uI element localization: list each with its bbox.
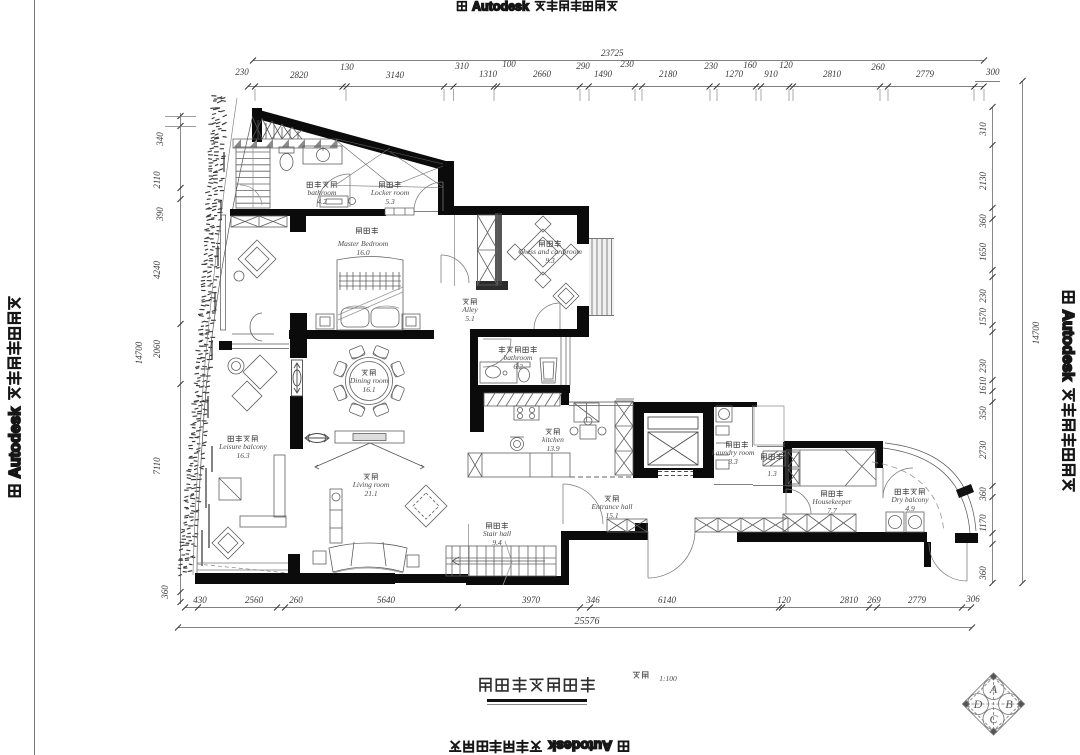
svg-text:346: 346 bbox=[585, 595, 600, 605]
svg-text:230: 230 bbox=[235, 67, 249, 77]
svg-text:16.3: 16.3 bbox=[236, 451, 249, 460]
svg-text:260: 260 bbox=[289, 595, 303, 605]
svg-text:bathroom: bathroom bbox=[308, 188, 337, 197]
svg-text:16.1: 16.1 bbox=[362, 385, 375, 394]
svg-text:2560: 2560 bbox=[245, 595, 264, 605]
svg-text:1270: 1270 bbox=[725, 69, 744, 79]
svg-text:5640: 5640 bbox=[377, 595, 396, 605]
svg-text:390: 390 bbox=[155, 207, 165, 222]
svg-text:2110: 2110 bbox=[152, 171, 162, 189]
svg-text:2810: 2810 bbox=[823, 69, 842, 79]
svg-text:25576: 25576 bbox=[575, 616, 600, 627]
svg-text:6140: 6140 bbox=[658, 595, 677, 605]
svg-text:230: 230 bbox=[620, 59, 634, 69]
svg-text:Alley: Alley bbox=[461, 305, 478, 314]
svg-text:2130: 2130 bbox=[978, 172, 988, 191]
svg-text:230: 230 bbox=[704, 61, 718, 71]
svg-text:4240: 4240 bbox=[152, 261, 162, 280]
svg-text:130: 130 bbox=[340, 62, 354, 72]
svg-text:3970: 3970 bbox=[521, 595, 541, 605]
svg-text:7110: 7110 bbox=[152, 457, 162, 475]
svg-text:430: 430 bbox=[193, 595, 207, 605]
svg-text:360: 360 bbox=[978, 487, 988, 502]
svg-text:6.2: 6.2 bbox=[513, 362, 523, 371]
svg-text:1.3: 1.3 bbox=[767, 469, 777, 478]
svg-text:120: 120 bbox=[779, 60, 793, 70]
svg-text:Dry balcony: Dry balcony bbox=[890, 495, 929, 504]
svg-text:100: 100 bbox=[502, 59, 516, 69]
svg-text:B: B bbox=[1005, 697, 1013, 711]
svg-text:C: C bbox=[989, 712, 998, 726]
svg-text:Stair hall: Stair hall bbox=[483, 529, 511, 538]
svg-text:5.1: 5.1 bbox=[465, 314, 474, 323]
svg-text:Chess and card room: Chess and card room bbox=[518, 247, 582, 256]
svg-text:4.9: 4.9 bbox=[905, 504, 915, 513]
svg-text:310: 310 bbox=[978, 122, 988, 137]
svg-text:1490: 1490 bbox=[594, 69, 613, 79]
svg-text:340: 340 bbox=[155, 132, 165, 147]
svg-text:16.0: 16.0 bbox=[356, 248, 369, 257]
svg-text:Leisure balcony: Leisure balcony bbox=[218, 442, 268, 451]
svg-text:2180: 2180 bbox=[659, 69, 678, 79]
svg-text:160: 160 bbox=[743, 60, 757, 70]
svg-text:230: 230 bbox=[978, 359, 988, 373]
svg-text:300: 300 bbox=[985, 67, 1000, 77]
svg-text:A: A bbox=[989, 682, 998, 696]
svg-text:1650: 1650 bbox=[978, 243, 988, 262]
svg-text:9.4: 9.4 bbox=[492, 538, 502, 547]
svg-text:2060: 2060 bbox=[152, 340, 162, 359]
svg-text:2779: 2779 bbox=[916, 69, 935, 79]
svg-text:1:100: 1:100 bbox=[659, 674, 677, 683]
svg-text:290: 290 bbox=[576, 61, 590, 71]
svg-text:7.7: 7.7 bbox=[827, 506, 837, 515]
svg-text:120: 120 bbox=[777, 595, 791, 605]
svg-text:13.9: 13.9 bbox=[546, 444, 559, 453]
svg-text:Living room: Living room bbox=[352, 480, 390, 489]
svg-text:21.1: 21.1 bbox=[364, 489, 377, 498]
svg-text:4.2: 4.2 bbox=[317, 197, 327, 206]
svg-text:kitchen: kitchen bbox=[542, 435, 564, 444]
svg-text:15.1: 15.1 bbox=[605, 511, 618, 520]
svg-text:Dining room: Dining room bbox=[349, 376, 389, 385]
svg-text:14700: 14700 bbox=[1031, 321, 1041, 344]
svg-text:910: 910 bbox=[764, 69, 778, 79]
svg-text:Housekeeper: Housekeeper bbox=[811, 497, 851, 506]
svg-text:2730: 2730 bbox=[978, 441, 988, 460]
svg-text:2820: 2820 bbox=[290, 70, 309, 80]
svg-text:2810: 2810 bbox=[840, 595, 859, 605]
svg-text:2660: 2660 bbox=[533, 69, 552, 79]
svg-text:D: D bbox=[973, 697, 983, 711]
svg-text:1310: 1310 bbox=[479, 69, 498, 79]
svg-text:9.3: 9.3 bbox=[545, 256, 555, 265]
svg-text:Laundry room: Laundry room bbox=[711, 448, 755, 457]
svg-text:310: 310 bbox=[454, 61, 469, 71]
svg-text:3140: 3140 bbox=[385, 70, 405, 80]
svg-text:Entrance hall: Entrance hall bbox=[590, 502, 632, 511]
svg-text:350: 350 bbox=[978, 406, 988, 421]
svg-text:306: 306 bbox=[965, 594, 980, 604]
svg-text:Locker room: Locker room bbox=[370, 188, 410, 197]
svg-text:14700: 14700 bbox=[134, 341, 144, 364]
svg-text:3.3: 3.3 bbox=[727, 457, 738, 466]
svg-text:1170: 1170 bbox=[978, 514, 988, 532]
svg-text:1570: 1570 bbox=[978, 308, 988, 327]
svg-text:1610: 1610 bbox=[978, 377, 988, 396]
svg-text:5.3: 5.3 bbox=[385, 197, 395, 206]
svg-text:360: 360 bbox=[978, 214, 988, 229]
svg-text:360: 360 bbox=[160, 585, 170, 600]
svg-text:260: 260 bbox=[871, 62, 885, 72]
svg-text:23725: 23725 bbox=[601, 48, 624, 58]
svg-text:360: 360 bbox=[978, 566, 988, 581]
svg-text:269: 269 bbox=[867, 595, 881, 605]
svg-text:bathroom: bathroom bbox=[504, 353, 533, 362]
svg-text:2779: 2779 bbox=[908, 595, 927, 605]
svg-text:Master Bedroom: Master Bedroom bbox=[337, 239, 389, 248]
svg-text:230: 230 bbox=[978, 289, 988, 303]
